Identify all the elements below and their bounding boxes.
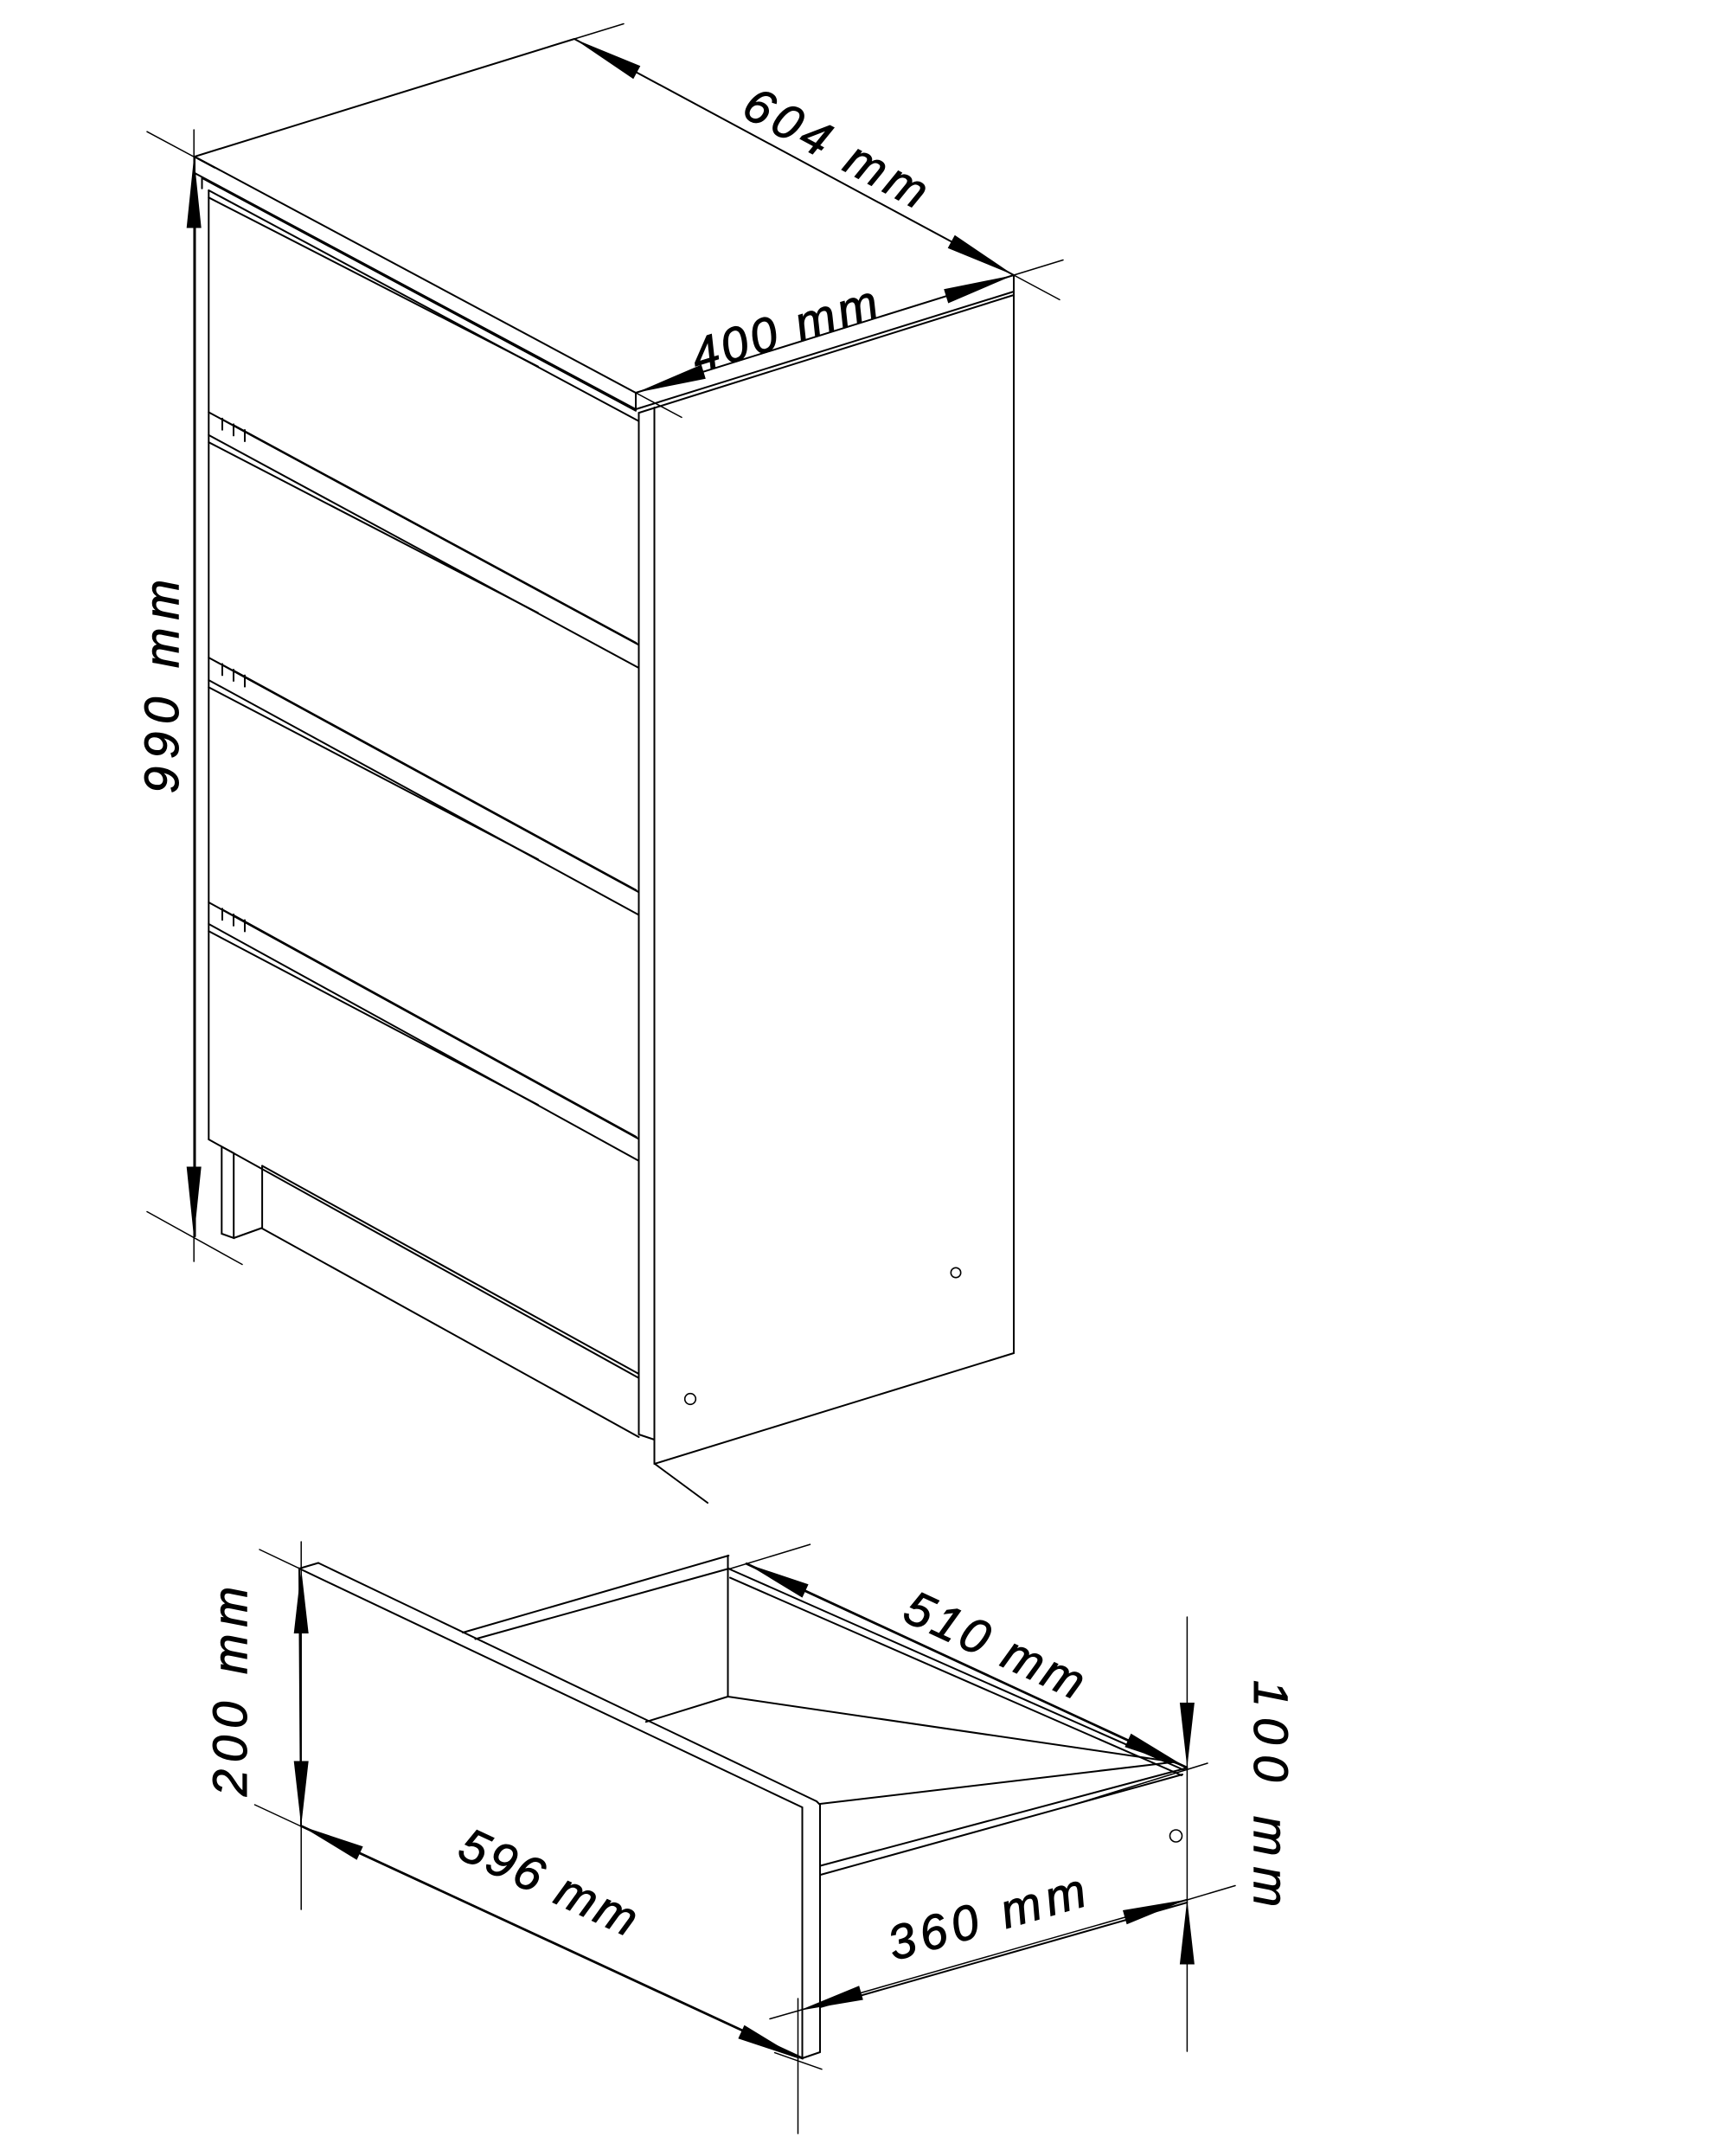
svg-text:200 mm: 200 mm <box>202 1580 257 1797</box>
svg-text:990 mm: 990 mm <box>134 572 189 793</box>
svg-text:100 mm: 100 mm <box>1244 1680 1298 1917</box>
